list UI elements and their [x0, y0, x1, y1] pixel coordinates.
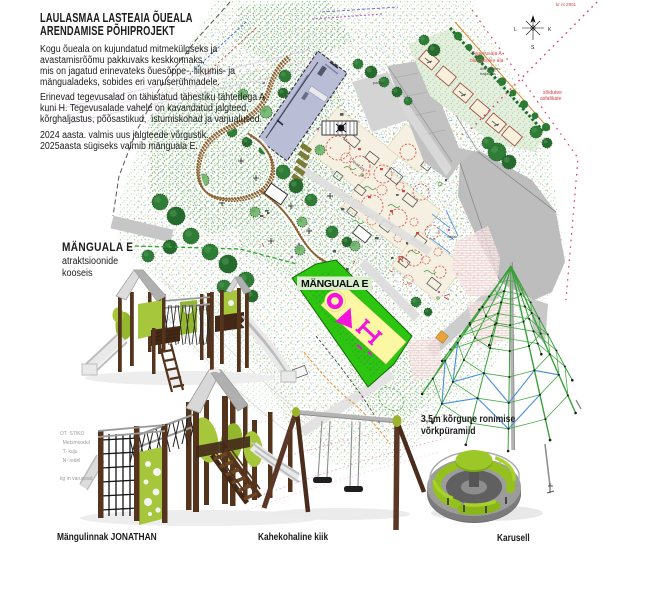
svg-text:väljak: väljak — [447, 234, 457, 239]
svg-text:kr nt 2901: kr nt 2901 — [556, 2, 577, 7]
svg-text:R: R — [398, 255, 404, 264]
svg-text:parkla: parkla — [373, 80, 385, 85]
svg-text:asfaltkate: asfaltkate — [540, 96, 562, 102]
svg-text:Tegevusala A: Tegevusala A — [472, 51, 502, 57]
svg-text:haljastus: haljastus — [480, 71, 496, 76]
svg-text:S: S — [531, 45, 535, 51]
svg-text:K: K — [548, 27, 552, 33]
svg-text:MÄNGUALA E: MÄNGUALA E — [301, 277, 369, 290]
svg-text:olemasolev ala: olemasolev ala — [470, 58, 504, 64]
svg-text:L: L — [514, 27, 517, 33]
